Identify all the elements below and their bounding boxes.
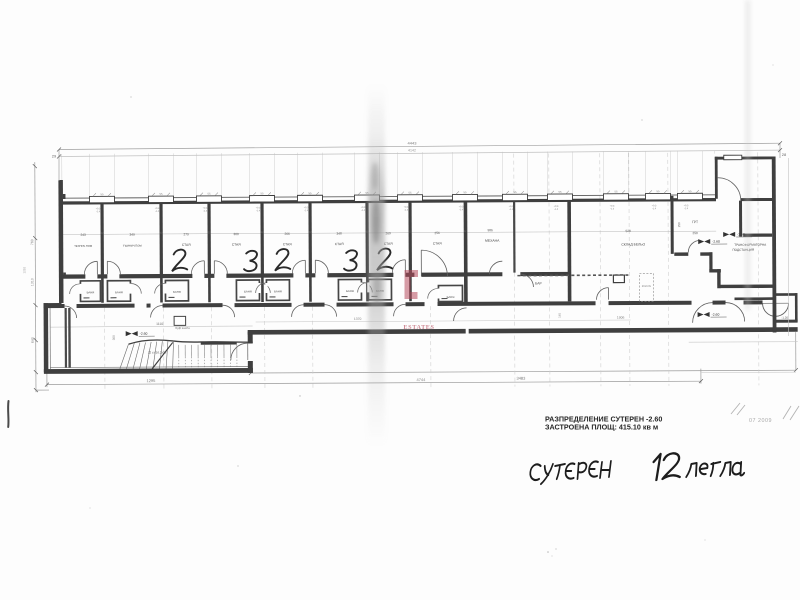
svg-text:БАНЯ: БАНЯ [115, 290, 123, 294]
svg-text:300: 300 [112, 335, 116, 340]
svg-text:-1.4: -1.4 [610, 208, 615, 211]
svg-text:145: 145 [558, 313, 562, 318]
svg-text:ТЪМНИЧ.ПОМ: ТЪМНИЧ.ПОМ [123, 244, 142, 248]
svg-text:-3.60: -3.60 [737, 233, 745, 237]
svg-text:-2.60: -2.60 [712, 240, 720, 244]
svg-text:269: 269 [385, 231, 391, 235]
svg-text:-1.4: -1.4 [459, 208, 464, 211]
svg-text:БАР: БАР [535, 282, 542, 286]
svg-text:760: 760 [30, 239, 34, 245]
svg-text:3483: 3483 [516, 376, 526, 381]
svg-text:БАНЯ: БАНЯ [87, 290, 95, 294]
svg-text:-1.4: -1.4 [361, 209, 366, 212]
svg-text:СТАЯ: СТАЯ [335, 242, 344, 246]
svg-text:640: 640 [31, 337, 35, 343]
svg-text:СТАЯ: СТАЯ [182, 243, 191, 247]
svg-text:СТАЯ: СТАЯ [433, 242, 442, 246]
svg-text:279: 279 [183, 232, 189, 236]
svg-text:-1.4: -1.4 [554, 208, 559, 211]
svg-text:300: 300 [233, 232, 239, 236]
svg-text:1906: 1906 [617, 316, 625, 320]
svg-text:Буф шахта: Буф шахта [176, 326, 191, 330]
svg-text:ТРАНСФОРМАТОРНА: ТРАНСФОРМАТОРНА [734, 243, 767, 247]
svg-text:ЗАСТРОЕНА ПЛОЩ: 415.10 кв м: ЗАСТРОЕНА ПЛОЩ: 415.10 кв м [545, 422, 658, 431]
svg-text:1110: 1110 [156, 322, 163, 326]
svg-text:1370: 1370 [354, 317, 362, 321]
svg-text:349: 349 [129, 233, 135, 237]
svg-text:-1.4: -1.4 [96, 210, 101, 213]
svg-text:МЕХАНА: МЕХАНА [485, 239, 500, 243]
svg-text:БАНЯ: БАНЯ [346, 289, 354, 293]
svg-text:4142: 4142 [408, 149, 416, 153]
svg-text:1310: 1310 [30, 278, 34, 286]
svg-text:-1.4: -1.4 [203, 210, 208, 213]
svg-text:250: 250 [692, 231, 698, 235]
svg-text:2010.05: 2010.05 [642, 284, 652, 288]
svg-text:СТАЯ: СТАЯ [232, 243, 241, 247]
svg-text:-2.60: -2.60 [140, 332, 148, 336]
svg-text:29: 29 [52, 154, 57, 159]
svg-text:-2.60: -2.60 [712, 313, 720, 317]
svg-text:07 2009: 07 2009 [749, 418, 772, 424]
svg-text:250: 250 [677, 222, 681, 227]
svg-text:-1.20: -1.20 [781, 316, 788, 320]
svg-text:ESTATES: ESTATES [403, 324, 434, 331]
svg-text:ГРТ: ГРТ [692, 220, 698, 224]
svg-text:БАНЯ: БАНЯ [447, 295, 455, 299]
svg-text:1292: 1292 [22, 267, 26, 274]
svg-text:986: 986 [487, 228, 493, 232]
svg-text:ТЕХНИЧ.ПОМ: ТЕХНИЧ.ПОМ [74, 244, 93, 248]
svg-text:БАНЯ: БАНЯ [274, 289, 282, 293]
svg-text:-1.4: -1.4 [155, 210, 160, 213]
svg-text:СТАЯ: СТАЯ [283, 242, 292, 246]
svg-text:-1.4: -1.4 [652, 207, 657, 210]
svg-text:БАНЯ: БАНЯ [173, 290, 181, 294]
svg-text:-1.4: -1.4 [256, 209, 261, 212]
svg-text:348: 348 [336, 232, 342, 236]
svg-text:СКЛАД БЕЛЬО: СКЛАД БЕЛЬО [621, 242, 645, 246]
svg-text:-1.4: -1.4 [304, 209, 309, 212]
svg-text:1295: 1295 [146, 378, 156, 383]
svg-text:243: 243 [80, 233, 86, 237]
svg-text:-1.4: -1.4 [684, 207, 689, 210]
svg-text:4744: 4744 [416, 377, 426, 382]
svg-text:266: 266 [284, 232, 290, 236]
svg-text:256: 256 [434, 231, 440, 235]
svg-text:28: 28 [782, 152, 787, 157]
svg-text:4443: 4443 [408, 140, 418, 145]
svg-text:ПОДСТАНЦИЯ: ПОДСТАНЦИЯ [732, 248, 754, 252]
svg-text:СТАЯ: СТАЯ [384, 242, 393, 246]
svg-text:-1.4: -1.4 [404, 209, 409, 212]
svg-text:БАНЯ: БАНЯ [244, 290, 252, 294]
svg-text:528: 528 [625, 229, 631, 233]
svg-text:12 ст 16.2х28: 12 ст 16.2х28 [148, 350, 167, 354]
